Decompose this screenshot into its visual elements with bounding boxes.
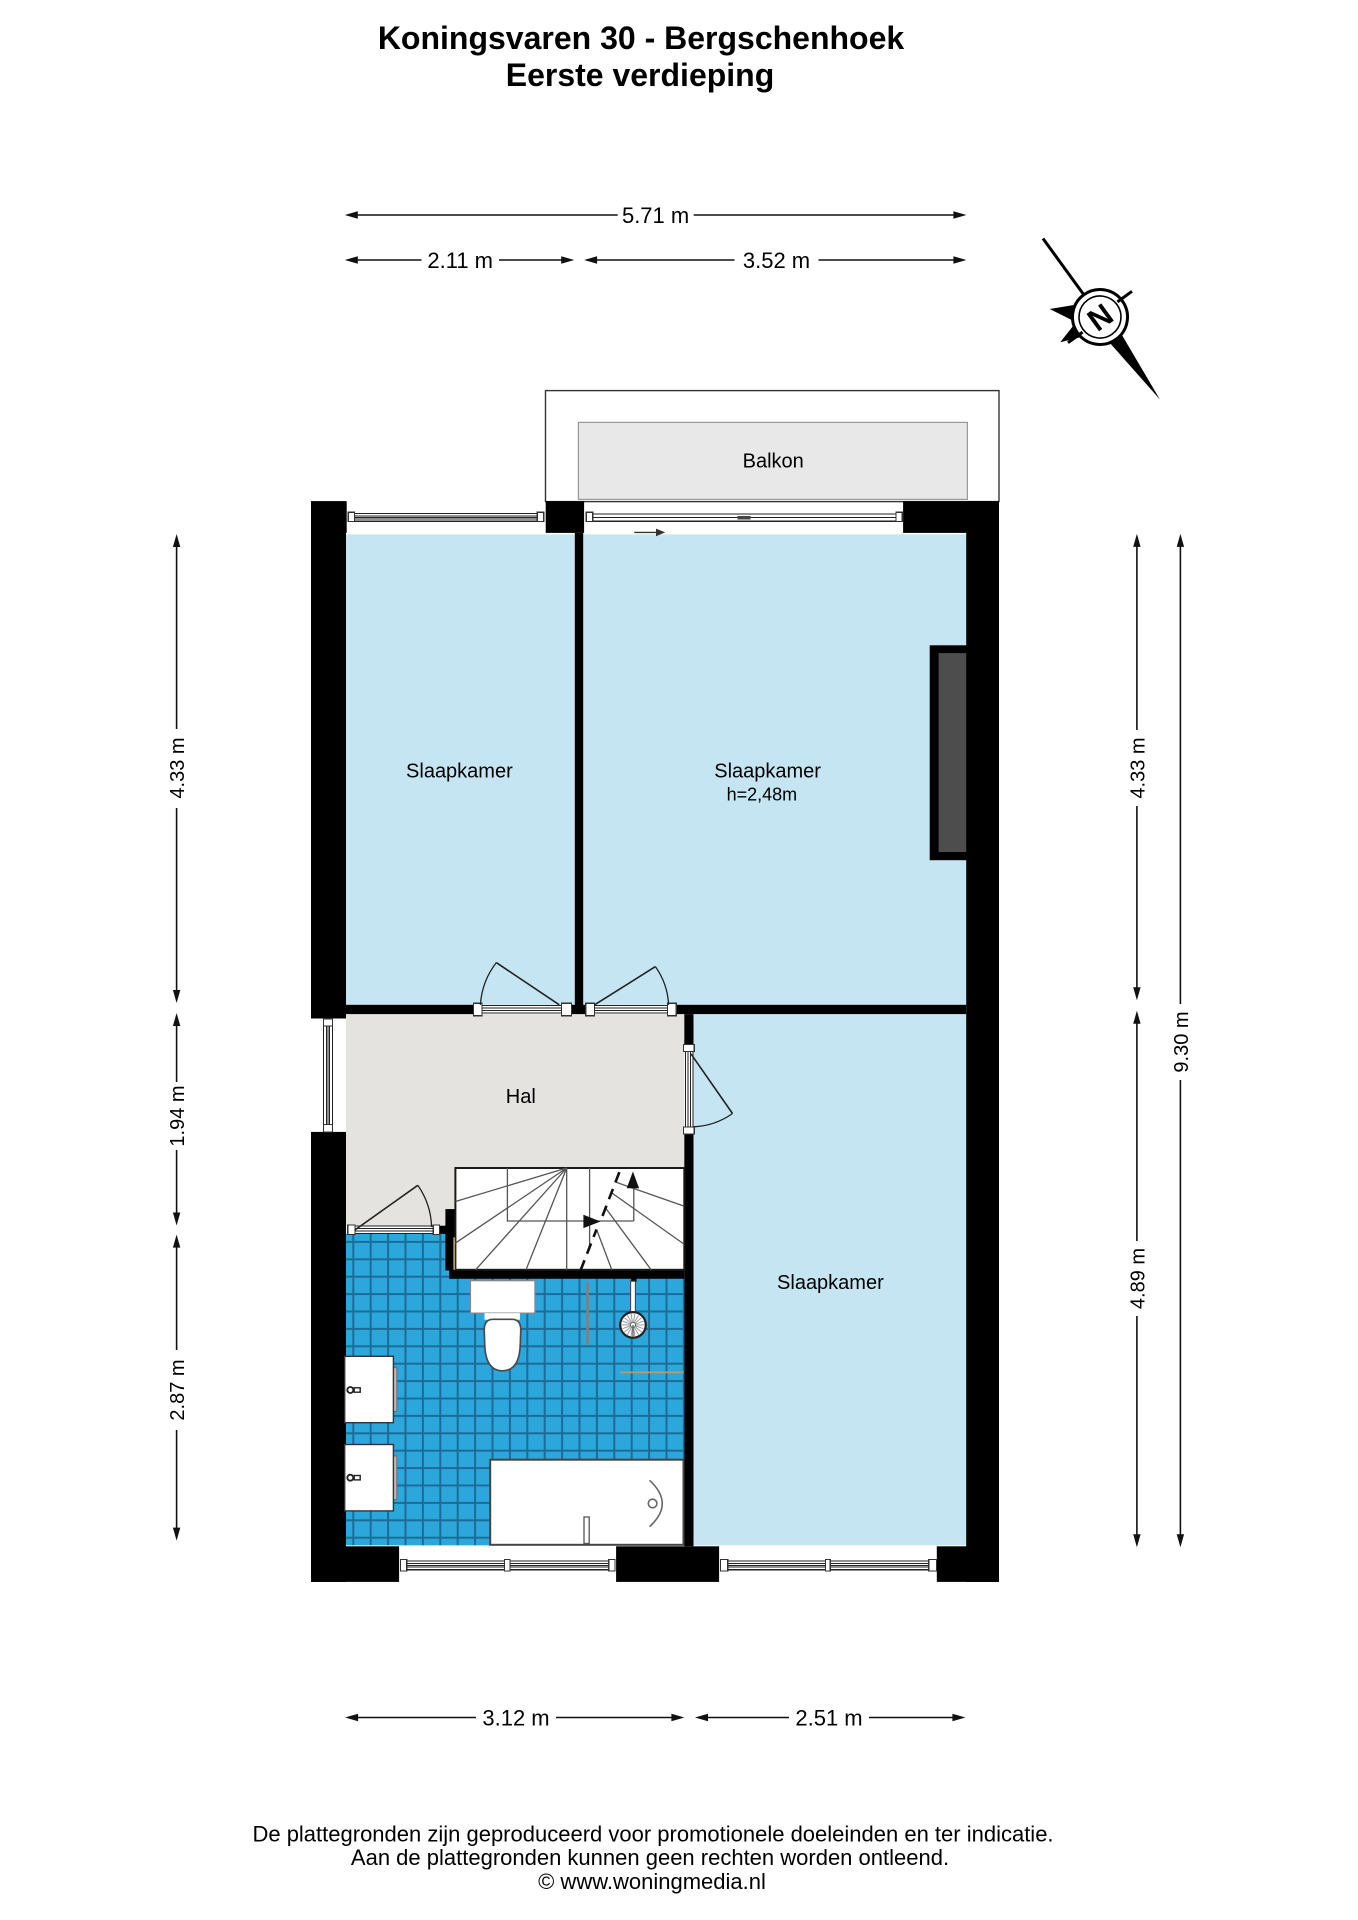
svg-text:4.33 m: 4.33 m — [1128, 737, 1150, 798]
svg-text:Slaapkamer: Slaapkamer — [406, 760, 513, 782]
svg-text:2.11 m: 2.11 m — [427, 248, 493, 273]
svg-text:4.89 m: 4.89 m — [1128, 1248, 1150, 1309]
svg-text:2.51 m: 2.51 m — [795, 1706, 862, 1731]
svg-text:3.12 m: 3.12 m — [482, 1706, 549, 1731]
svg-text:Koningsvaren 30 - Bergschenhoe: Koningsvaren 30 - Bergschenhoek — [378, 20, 905, 56]
svg-text:3.52 m: 3.52 m — [743, 248, 810, 273]
svg-text:Slaapkamer: Slaapkamer — [714, 760, 821, 782]
svg-text:h=2,48m: h=2,48m — [727, 784, 798, 804]
svg-text:Slaapkamer: Slaapkamer — [777, 1272, 884, 1294]
svg-text:5.71 m: 5.71 m — [622, 203, 689, 228]
svg-text:1.94 m: 1.94 m — [167, 1085, 189, 1146]
svg-text:4.33 m: 4.33 m — [167, 737, 189, 798]
svg-text:9.30 m: 9.30 m — [1171, 1011, 1193, 1072]
svg-text:2.87 m: 2.87 m — [167, 1359, 189, 1420]
svg-text:De plattegronden zijn geproduc: De plattegronden zijn geproduceerd voor … — [252, 1821, 1053, 1846]
svg-text:Balkon: Balkon — [743, 451, 804, 473]
svg-text:Aan de plattegronden kunnen ge: Aan de plattegronden kunnen geen rechten… — [351, 1845, 949, 1870]
svg-text:Eerste verdieping: Eerste verdieping — [506, 57, 775, 93]
svg-text:Hal: Hal — [506, 1086, 536, 1108]
svg-text:© www.woningmedia.nl: © www.woningmedia.nl — [538, 1869, 766, 1894]
